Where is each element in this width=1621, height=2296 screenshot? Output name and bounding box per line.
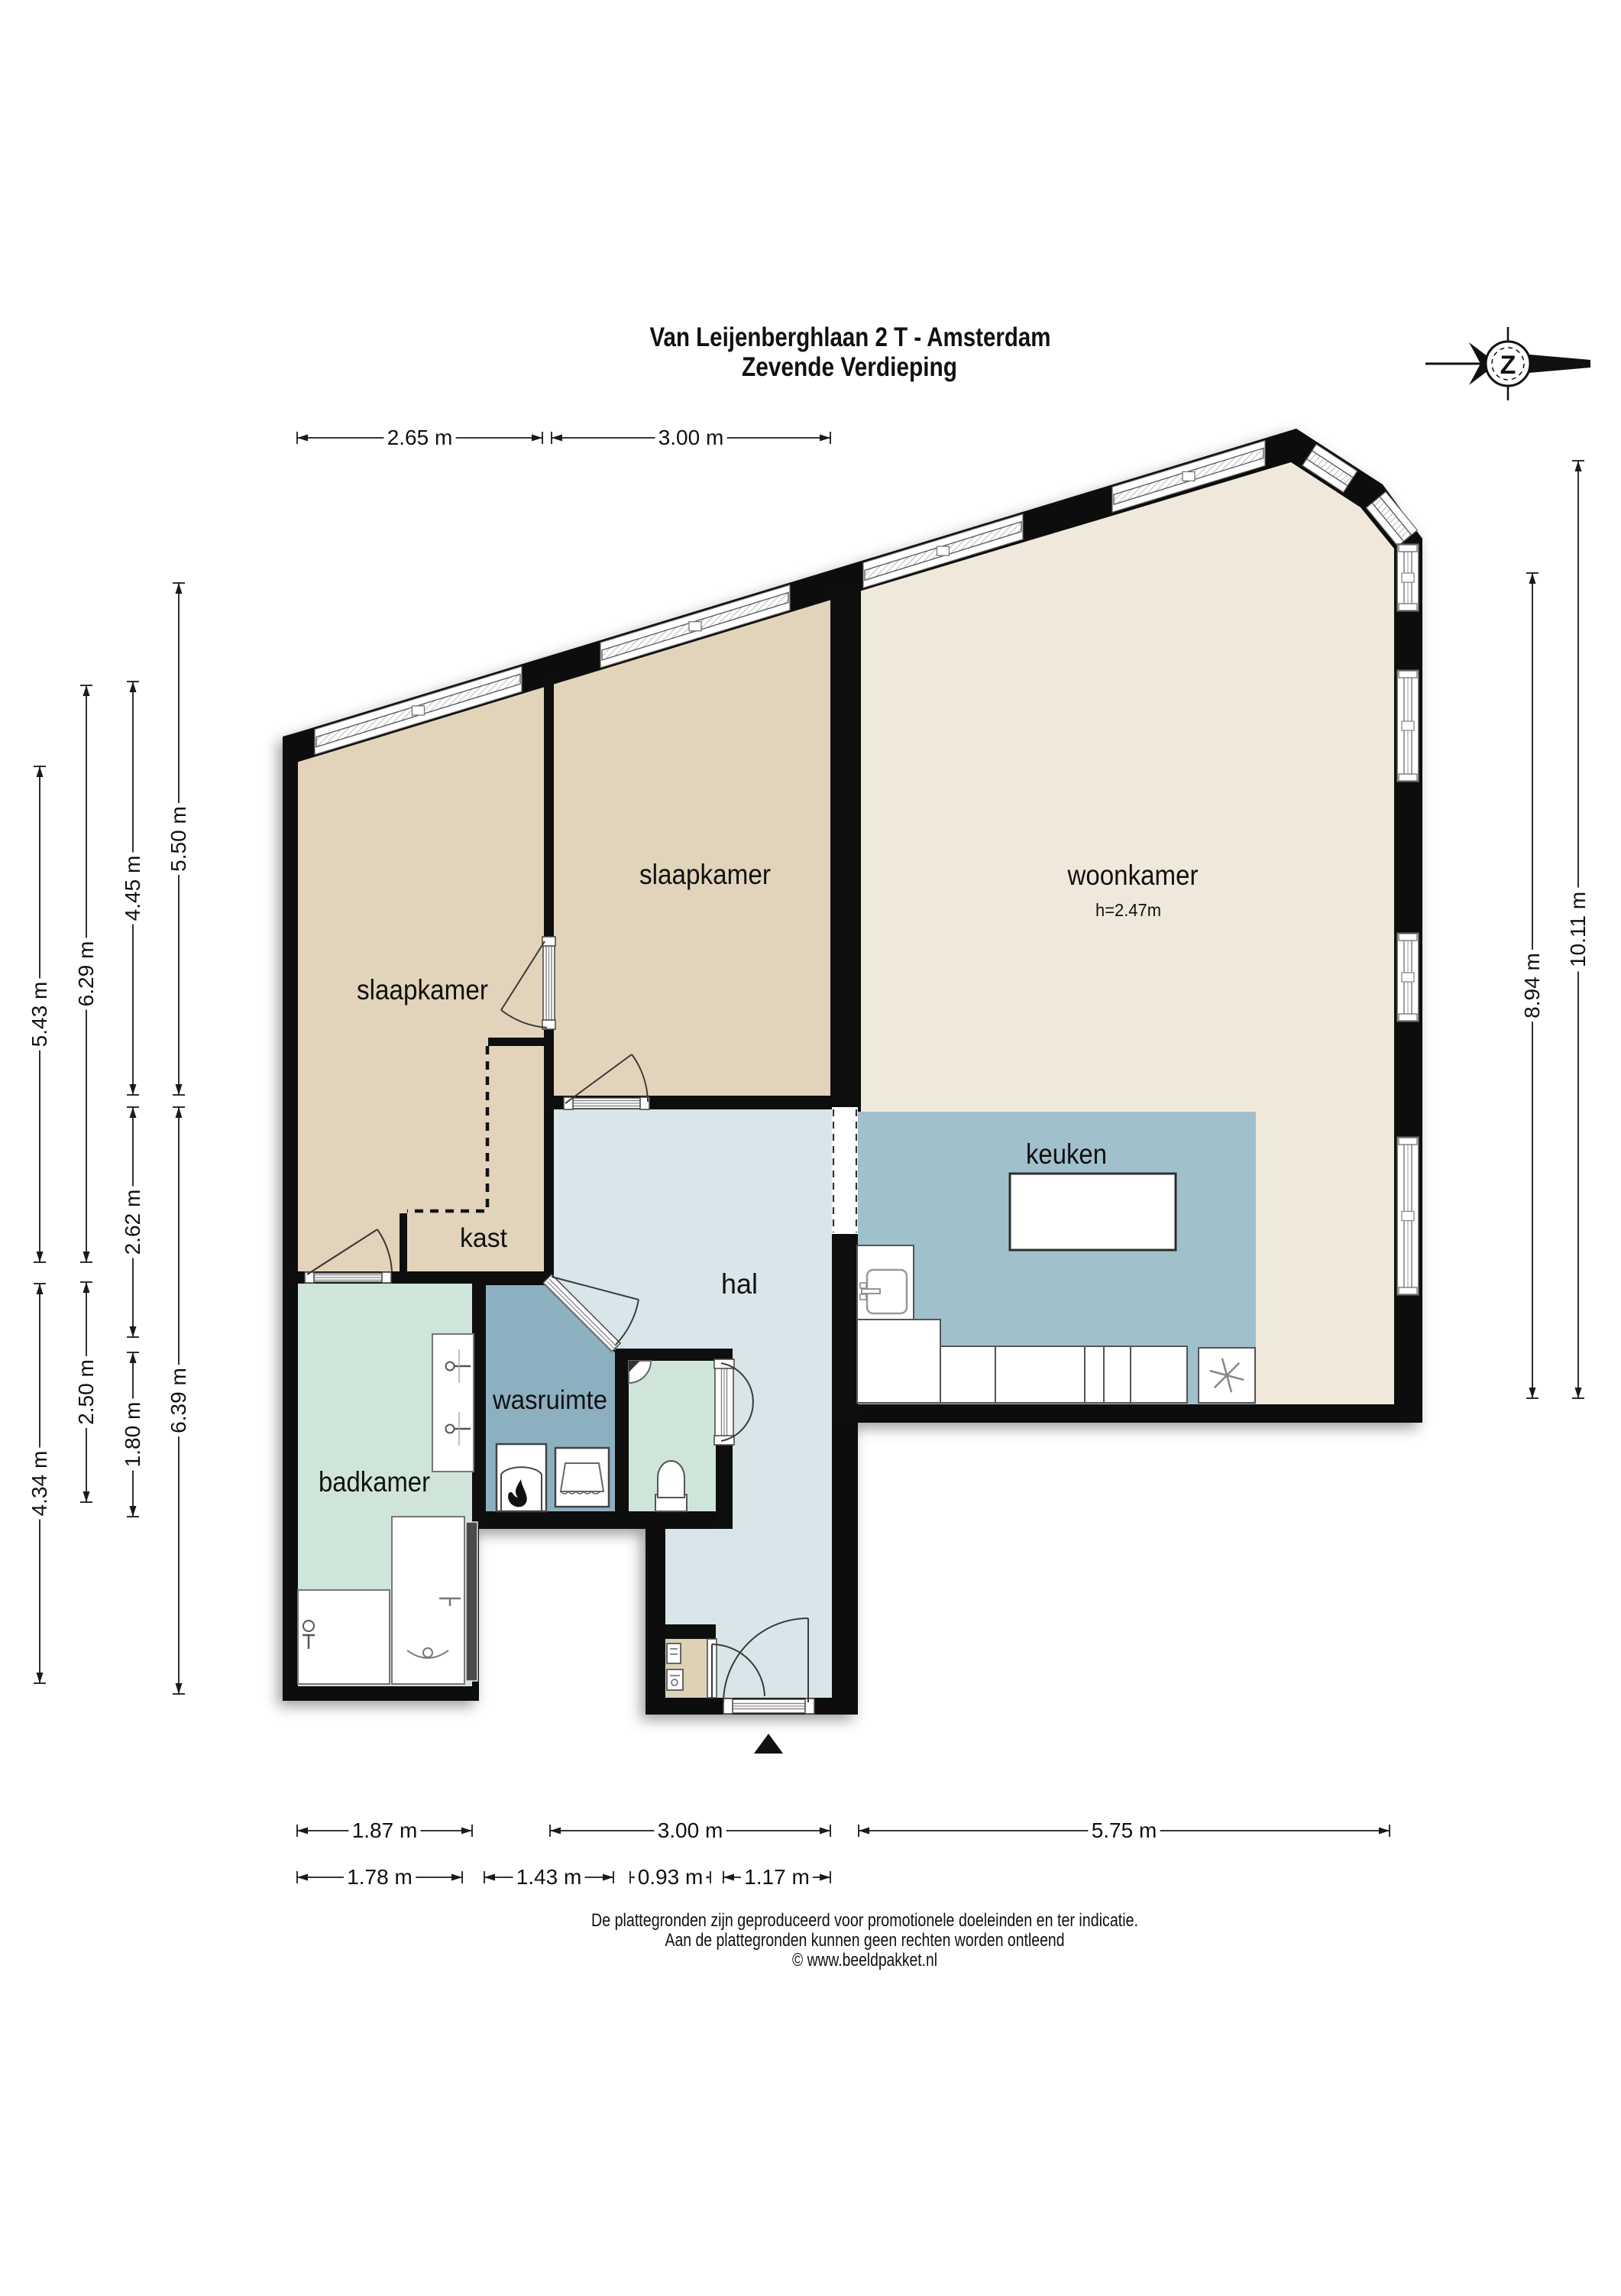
svg-text:8.94 m: 8.94 m <box>1520 953 1544 1018</box>
svg-text:10.11 m: 10.11 m <box>1566 892 1590 967</box>
svg-text:5.75 m: 5.75 m <box>1092 1818 1157 1842</box>
svg-text:Aan de plattegronden kunnen ge: Aan de plattegronden kunnen geen rechten… <box>665 1930 1065 1951</box>
svg-text:keuken: keuken <box>1026 1138 1107 1170</box>
svg-text:Zevende Verdieping: Zevende Verdieping <box>742 352 957 382</box>
svg-text:slaapkamer: slaapkamer <box>639 859 771 890</box>
svg-text:6.39 m: 6.39 m <box>167 1368 190 1433</box>
svg-text:1.87 m: 1.87 m <box>352 1818 418 1842</box>
svg-text:slaapkamer: slaapkamer <box>357 974 488 1006</box>
svg-text:6.29 m: 6.29 m <box>74 941 98 1007</box>
svg-text:kast: kast <box>460 1223 507 1253</box>
svg-text:© www.beeldpakket.nl: © www.beeldpakket.nl <box>792 1950 937 1971</box>
svg-text:3.00 m: 3.00 m <box>658 426 724 449</box>
svg-text:1.80 m: 1.80 m <box>121 1402 144 1468</box>
svg-text:badkamer: badkamer <box>319 1466 430 1498</box>
svg-text:0.93 m: 0.93 m <box>638 1865 704 1889</box>
svg-text:4.45 m: 4.45 m <box>121 856 144 921</box>
svg-text:5.43 m: 5.43 m <box>28 982 51 1048</box>
svg-text:1.17 m: 1.17 m <box>744 1865 810 1889</box>
svg-text:woonkamer: woonkamer <box>1067 860 1199 891</box>
svg-text:Z: Z <box>1500 351 1516 380</box>
svg-text:4.34 m: 4.34 m <box>28 1451 51 1517</box>
svg-text:1.78 m: 1.78 m <box>347 1865 413 1889</box>
svg-text:5.50 m: 5.50 m <box>167 806 190 872</box>
svg-text:2.62 m: 2.62 m <box>121 1190 144 1255</box>
svg-text:wasruimte: wasruimte <box>492 1385 607 1415</box>
svg-text:Van Leijenberghlaan 2 T - Amst: Van Leijenberghlaan 2 T - Amsterdam <box>650 322 1051 352</box>
svg-text:2.50 m: 2.50 m <box>74 1359 98 1425</box>
svg-text:h=2.47m: h=2.47m <box>1095 900 1161 920</box>
svg-text:hal: hal <box>721 1268 758 1300</box>
svg-text:2.65 m: 2.65 m <box>387 426 453 449</box>
svg-text:De plattegronden zijn geproduc: De plattegronden zijn geproduceerd voor … <box>591 1910 1138 1931</box>
svg-text:3.00 m: 3.00 m <box>658 1818 723 1842</box>
svg-text:1.43 m: 1.43 m <box>516 1865 582 1889</box>
